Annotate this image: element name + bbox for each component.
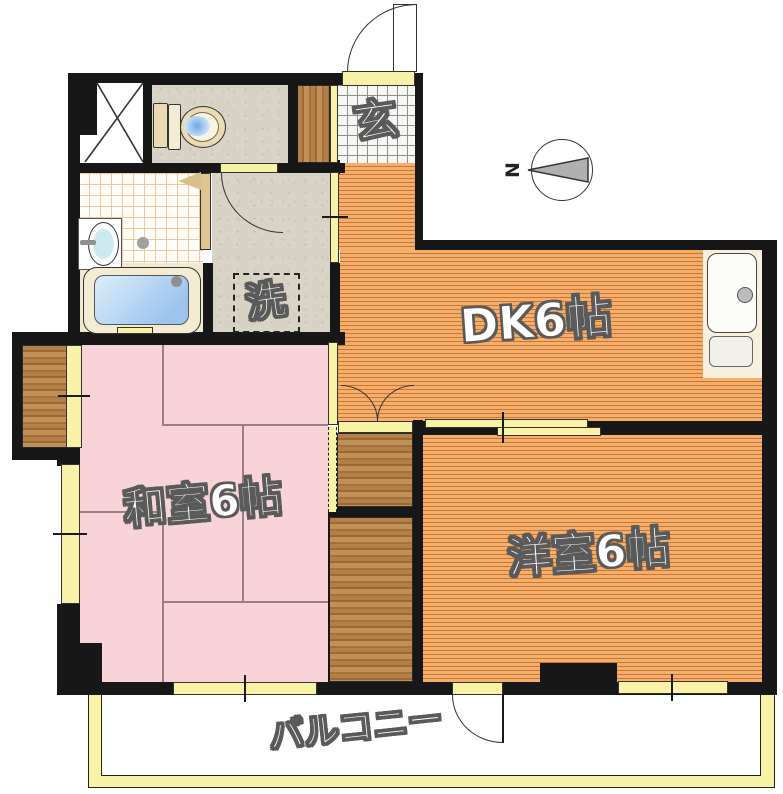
kitchen-sink-drain [737,287,753,303]
bathtub-step [117,327,153,334]
window-tick [244,675,246,702]
entrance-step-strip [330,85,338,163]
tatami-line [162,601,328,603]
tatami-line [162,512,164,682]
window-tick [322,216,348,218]
floor-plan: N 玄 洗 DK6帖 和室6帖 洋室6帖 バルコニー [0,0,783,794]
wall-bath-hall [203,263,213,335]
wall-hall-dk-bottom [330,263,340,337]
wall-toilet-right [288,83,298,163]
dk-corridor-floor [338,163,415,250]
washbasin-faucet [80,240,96,245]
compass-needle [527,155,591,185]
toilet-tank [153,103,168,148]
tatami-line [162,345,164,425]
dk-closet-threshold [338,421,413,433]
dk-western-slider-bar2 [497,427,601,436]
dk-room-label: DK6帖 [459,293,614,349]
tatami-line [162,424,328,426]
western-room-label: 洋室6帖 [506,526,671,581]
wall-closet-mid [328,507,413,517]
bathtub-faucet [171,276,182,287]
compass-north-label: N [502,158,526,182]
window-tick [502,412,504,443]
kitchen-stove [709,336,753,367]
balcony-door-leaf [502,695,504,743]
wall-right [762,240,777,695]
bathroom-door-arrow [178,172,201,190]
entrance-door-threshold [342,71,415,86]
window-tick [58,395,90,397]
wall-dk-top [415,240,777,250]
wall-closet-column-right [413,420,423,682]
closet-upper [337,433,413,507]
balcony-door-threshold [452,682,503,695]
pipe-space-icon [80,83,144,163]
wall-toilet-left [143,83,152,163]
japanese-dk-sliding-door [328,342,338,425]
laundry-label: 洗 [243,279,288,324]
entrance-label: 玄 [351,97,401,147]
closet-lower [328,517,413,682]
western-room-bottom-window [618,681,728,694]
window-tick [671,674,673,701]
shoe-cabinet [297,85,330,163]
wall-western-pillar [540,663,617,682]
wall-hall-top [68,163,345,173]
bathroom-folding-door [200,173,211,250]
toilet-water [184,116,210,136]
window-tick [53,533,87,535]
wall-closet-left [12,332,22,453]
washbasin-water [93,229,114,259]
wall-entrance-right [415,73,423,250]
wall-corner-notch [57,643,102,695]
toilet-door-threshold [220,163,278,173]
entrance-door-arc [347,4,417,72]
bathroom-drain [137,237,149,249]
japanese-closet-sliding-door [328,427,337,512]
